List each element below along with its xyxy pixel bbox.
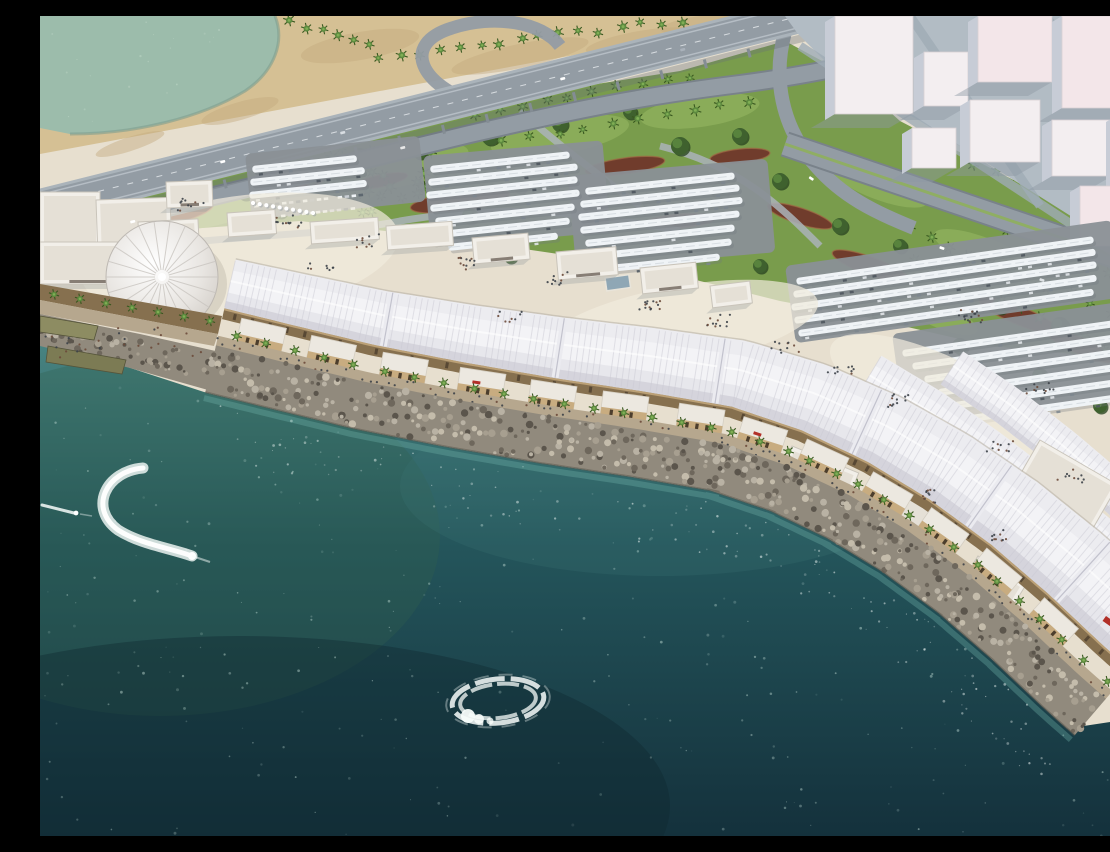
flat-roof-pavilion	[379, 221, 454, 255]
flat-roof-pavilion	[303, 217, 380, 249]
aerial-rendering: Aerial architectural rendering of a curv…	[40, 16, 1110, 836]
flat-roof-pavilion	[465, 233, 530, 269]
flat-roof-pavilion	[159, 180, 213, 213]
flat-roof-pavilion	[549, 247, 619, 286]
flat-roof-pavilion	[633, 262, 699, 299]
flat-roof-pavilion	[220, 210, 277, 243]
scene-canvas: Aerial architectural rendering of a curv…	[40, 16, 1110, 836]
